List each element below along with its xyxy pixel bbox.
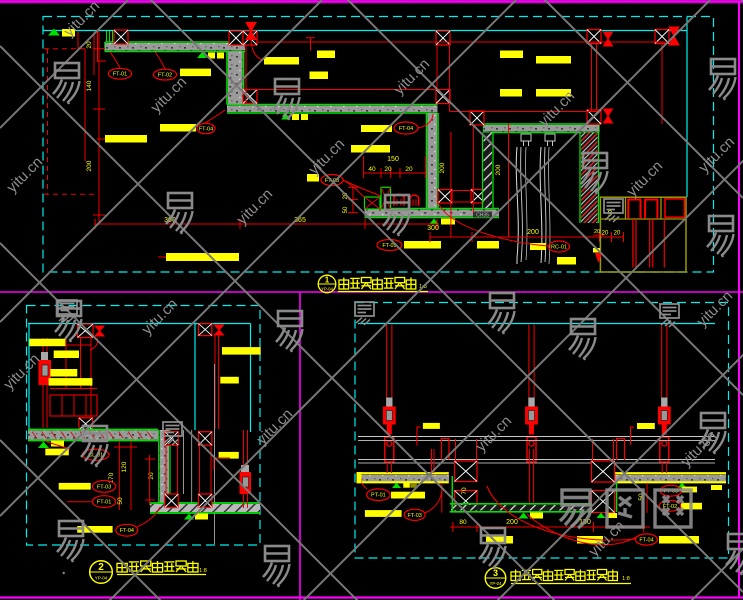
svg-text:RC-01: RC-01 [551, 245, 567, 251]
svg-text:50: 50 [117, 497, 124, 505]
svg-text:PT-01: PT-01 [371, 493, 386, 499]
svg-text:200: 200 [495, 164, 502, 175]
svg-text:150: 150 [387, 156, 399, 163]
svg-text:200: 200 [506, 519, 518, 526]
svg-text:FT-03: FT-03 [408, 513, 422, 519]
svg-text:FT-04: FT-04 [399, 126, 413, 132]
svg-text:YP-04: YP-04 [321, 287, 333, 292]
svg-text:80: 80 [459, 519, 467, 526]
svg-text:YP-04: YP-04 [490, 581, 503, 586]
svg-text:20: 20 [405, 166, 413, 173]
svg-text:300: 300 [427, 225, 439, 232]
svg-text:FT-01: FT-01 [113, 72, 127, 78]
svg-text:140: 140 [86, 80, 93, 91]
svg-text:CH35: CH35 [476, 213, 489, 219]
svg-text:40: 40 [368, 166, 376, 173]
svg-text:FT-04: FT-04 [199, 127, 213, 133]
svg-text:20: 20 [594, 229, 600, 235]
svg-text:1:8: 1:8 [199, 568, 207, 574]
svg-text:20: 20 [384, 166, 392, 173]
svg-text:1:8: 1:8 [622, 576, 630, 582]
svg-text:1: 1 [325, 276, 330, 285]
svg-text:FT-03: FT-03 [97, 484, 111, 490]
svg-text:FT-04: FT-04 [639, 538, 653, 544]
svg-text:120: 120 [121, 461, 128, 472]
svg-text:200: 200 [86, 160, 93, 171]
svg-text:FT-02: FT-02 [158, 73, 172, 79]
svg-text:20: 20 [602, 231, 609, 237]
svg-text:20: 20 [614, 231, 621, 237]
svg-text:FT-04: FT-04 [120, 528, 134, 534]
svg-text:YP-04: YP-04 [95, 576, 108, 581]
svg-text:2: 2 [98, 562, 104, 573]
svg-text:200: 200 [527, 229, 539, 236]
svg-text:50: 50 [343, 206, 349, 213]
svg-text:70: 70 [461, 487, 468, 495]
svg-text:20: 20 [148, 472, 155, 480]
svg-text:200: 200 [439, 162, 446, 173]
svg-text:FT-01: FT-01 [97, 500, 111, 506]
svg-text:3: 3 [493, 568, 498, 578]
